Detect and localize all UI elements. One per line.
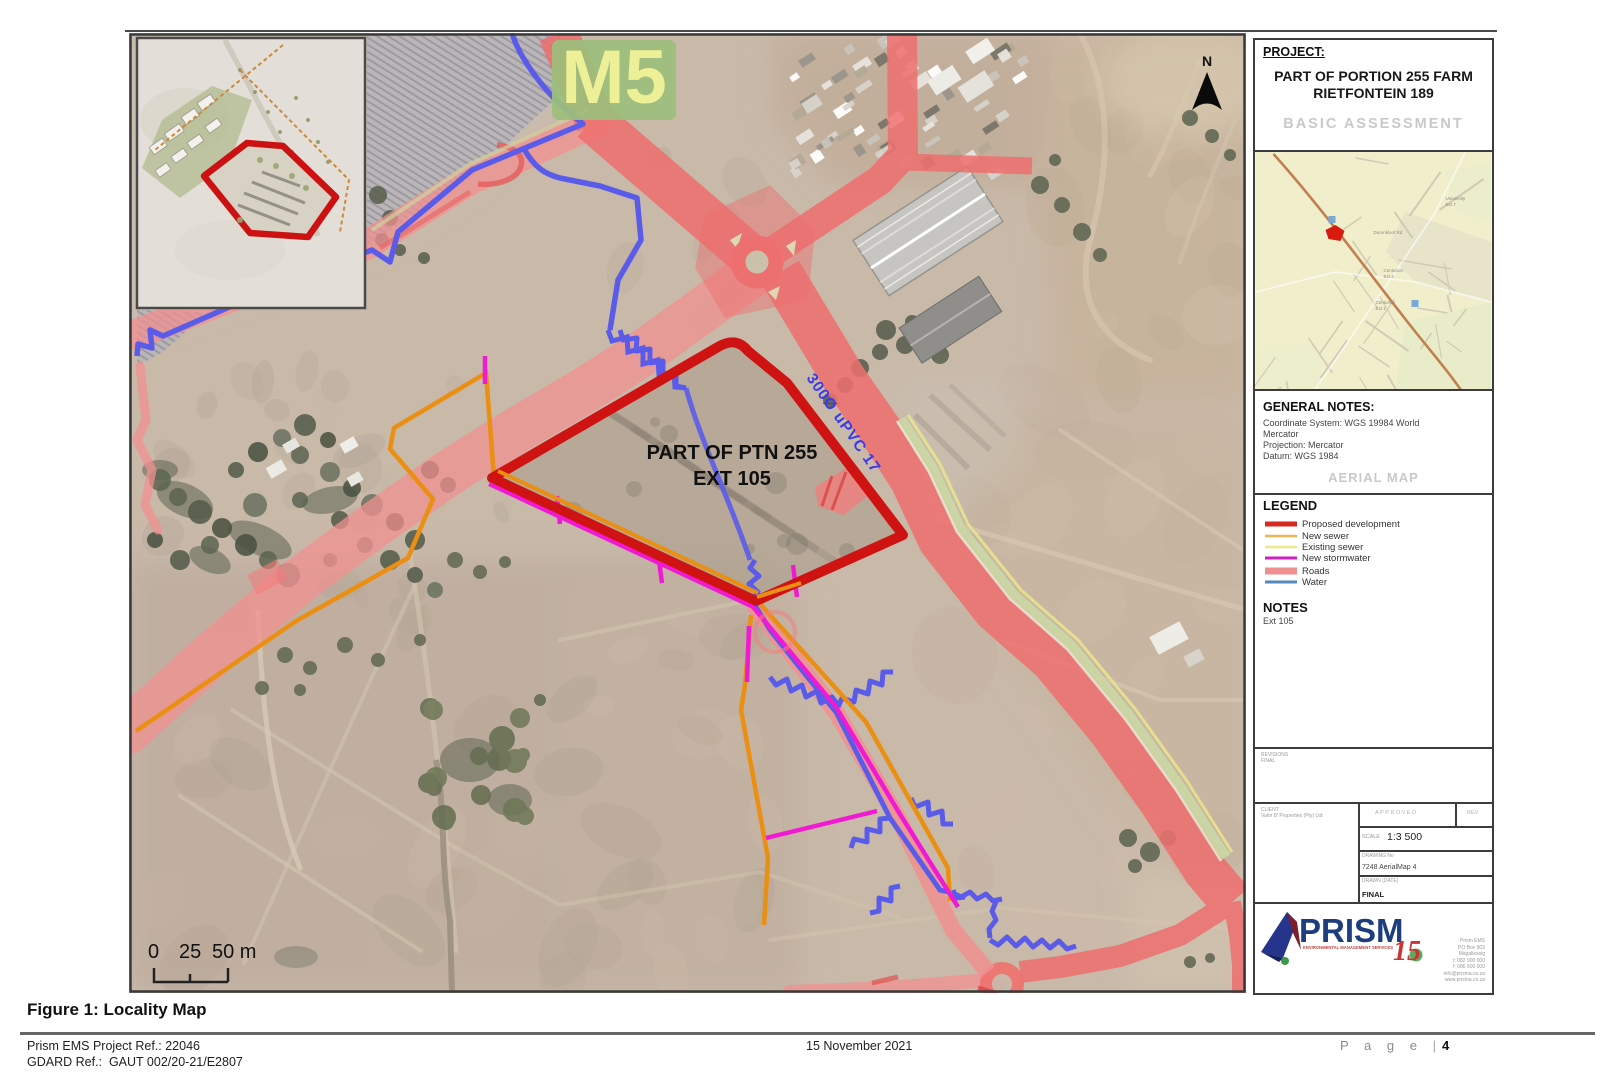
svg-text:Proposed development: Proposed development (1302, 519, 1400, 530)
svg-text:N: N (1202, 53, 1212, 69)
svg-text:Centurion: Centurion (1384, 268, 1404, 273)
svg-text:EXT 105: EXT 105 (693, 468, 771, 490)
svg-text:0: 0 (148, 941, 159, 963)
svg-text:PART OF PTN 255: PART OF PTN 255 (647, 442, 818, 464)
svg-text:25: 25 (179, 941, 201, 963)
svg-text:New sewer: New sewer (1302, 531, 1349, 542)
svg-text:Ext 4: Ext 4 (1384, 274, 1395, 279)
svg-text:Water: Water (1302, 577, 1327, 588)
svg-text:50 m: 50 m (212, 941, 256, 963)
svg-text:University: University (1446, 196, 1467, 201)
svg-text:PRISM: PRISM (1299, 912, 1404, 949)
svg-text:New stormwater: New stormwater (1302, 553, 1371, 564)
svg-text:Ext 1: Ext 1 (1376, 306, 1387, 311)
svg-text:Doornkloof Rd: Doornkloof Rd (1374, 230, 1403, 235)
svg-text:ENVIRONMENTAL MANAGEMENT SERVI: ENVIRONMENTAL MANAGEMENT SERVICES (1303, 945, 1393, 950)
svg-text:Existing sewer: Existing sewer (1302, 542, 1363, 553)
svg-text:Centurion: Centurion (1376, 300, 1396, 305)
svg-text:M5: M5 (561, 35, 667, 120)
svg-text:Roads: Roads (1302, 566, 1330, 577)
svg-text:Ext 7: Ext 7 (1446, 202, 1457, 207)
